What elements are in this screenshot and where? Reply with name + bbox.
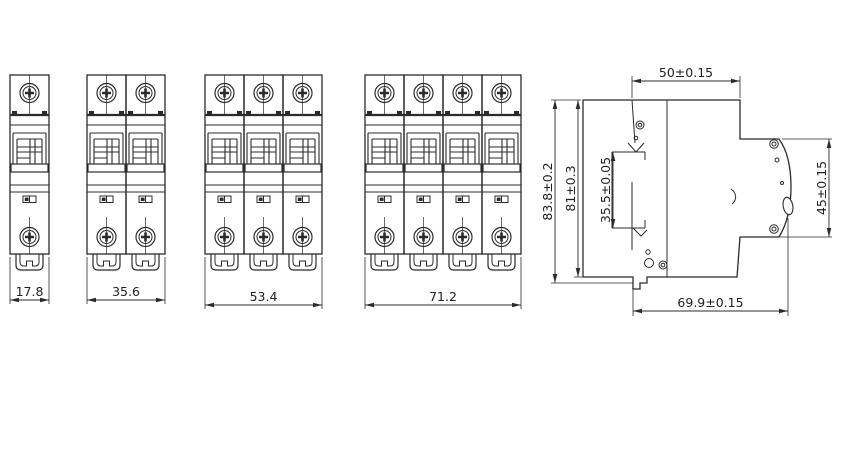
dimension-din-slot: 35.5±0.05 xyxy=(598,157,613,223)
dimension-overall-depth: 69.9±0.15 xyxy=(677,295,743,310)
dimension-top-width: 50±0.15 xyxy=(659,65,713,80)
front-views-group: 17.835.653.471.2 xyxy=(10,75,521,309)
breaker-front-view-1pole: 17.8 xyxy=(10,75,49,304)
mcb-technical-drawing-canvas: 17.835.653.471.2 50±0.1569.9±0.1583.8±0.… xyxy=(0,0,842,451)
dimension-width-1pole: 17.8 xyxy=(16,284,44,299)
dimension-front-face-height: 45±0.15 xyxy=(814,161,829,215)
side-view-group: 50±0.1569.9±0.1583.8±0.281±0.335.5±0.054… xyxy=(540,65,832,316)
breaker-front-view-4pole: 71.2 xyxy=(365,75,521,309)
dimension-body-height: 81±0.3 xyxy=(563,165,578,211)
dimension-width-3pole: 53.4 xyxy=(250,289,278,304)
breaker-front-view-3pole: 53.4 xyxy=(205,75,322,309)
dimension-width-2pole: 35.6 xyxy=(112,284,140,299)
mcb-dimension-drawing: 17.835.653.471.2 50±0.1569.9±0.1583.8±0.… xyxy=(0,0,842,451)
dimension-width-4pole: 71.2 xyxy=(429,289,457,304)
dimension-overall-height: 83.8±0.2 xyxy=(540,162,555,220)
breaker-front-view-2pole: 35.6 xyxy=(87,75,165,304)
